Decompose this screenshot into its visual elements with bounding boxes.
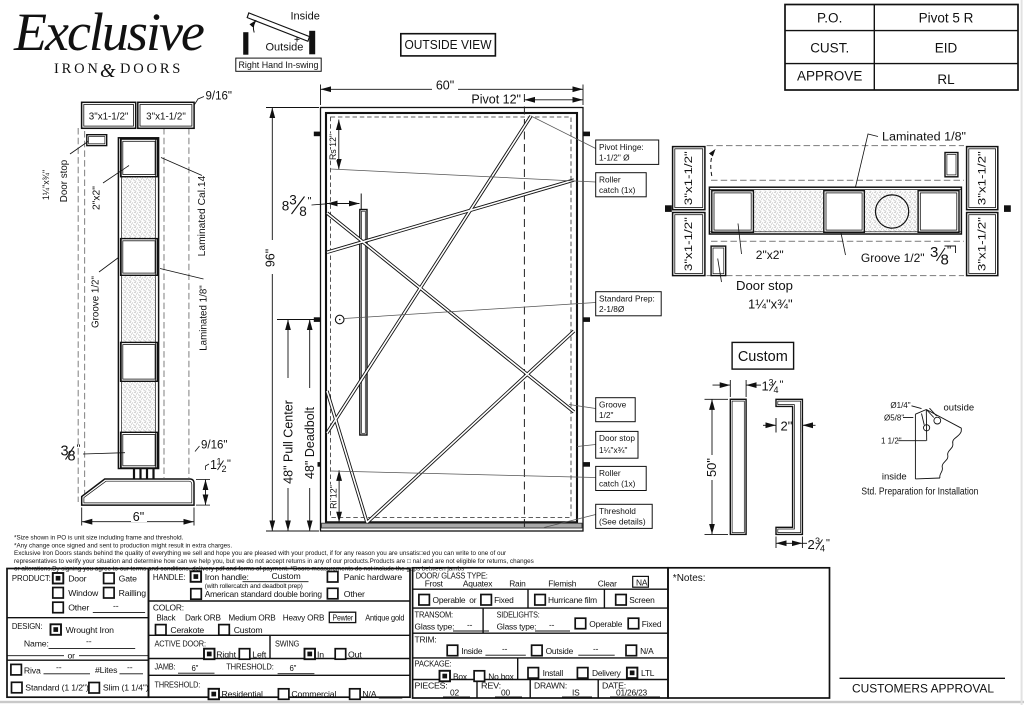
svg-text:--: -- [593,644,599,654]
svg-text:Laminated 1/8": Laminated 1/8" [882,132,966,144]
svg-text:Frost: Frost [425,578,444,588]
svg-text:Outside: Outside [266,42,304,54]
svg-text:LTL: LTL [641,668,655,678]
svg-text:Gate: Gate [119,574,138,584]
svg-text:Custom: Custom [272,571,301,581]
svg-text:Std. Preparation for Installat: Std. Preparation for Installation [861,487,978,498]
svg-text:COLOR:: COLOR: [153,603,184,613]
svg-text:": " [780,379,784,391]
svg-text:RL: RL [937,72,955,87]
svg-text:8: 8 [68,449,76,465]
svg-text:Door stop: Door stop [736,278,793,293]
svg-text:(See details): (See details) [599,517,646,527]
svg-text:TRIM:: TRIM: [415,634,437,644]
svg-text:Inside: Inside [291,11,320,23]
svg-text:P.O.: P.O. [817,11,842,26]
svg-text:N/A: N/A [640,646,654,656]
svg-text:": " [77,443,81,455]
svg-text:Standard (1 1/2"): Standard (1 1/2") [25,683,89,693]
svg-text:*Size shown in PO is unit size: *Size shown in PO is unit size including… [14,535,184,542]
svg-text:2"x2": 2"x2" [92,186,103,210]
svg-text:Slim (1 1/4"): Slim (1 1/4") [103,683,149,693]
svg-text:Door stop: Door stop [599,433,635,443]
svg-text:American standard double borin: American standard double boring [205,589,323,599]
svg-text:DESIGN:: DESIGN: [12,621,43,631]
svg-text:00: 00 [501,688,510,698]
svg-text:APPROVE: APPROVE [797,69,862,84]
svg-text:Name:: Name: [24,638,49,648]
svg-text:": " [308,196,312,208]
svg-text:CUSTOMERS APPROVAL: CUSTOMERS APPROVAL [852,683,994,696]
svg-text:9/16": 9/16" [206,91,232,103]
svg-text:4: 4 [774,385,779,395]
svg-text:Pivot Hinge:: Pivot Hinge: [599,142,644,152]
svg-text:CUST.: CUST. [810,41,849,56]
svg-text:48" Pull Center: 48" Pull Center [282,400,296,484]
svg-text:Iron handle:: Iron handle: [205,572,249,582]
svg-text:Other: Other [344,589,365,599]
svg-text:Dark ORB: Dark ORB [185,614,221,623]
svg-text:Custom: Custom [234,625,263,635]
svg-text:PACKAGE:: PACKAGE: [415,659,452,669]
svg-text:IS: IS [572,688,580,698]
svg-text:EID: EID [935,41,958,56]
svg-text:2: 2 [222,464,227,474]
svg-text:SIDELIGHTS:: SIDELIGHTS: [497,610,540,620]
svg-text:Right Hand In-swing: Right Hand In-swing [239,60,319,71]
svg-text:Pivot 12": Pivot 12" [471,93,521,107]
svg-text:or: or [68,650,76,660]
svg-text:01/26/23: 01/26/23 [616,688,648,698]
svg-text:Threshold: Threshold [599,506,636,516]
svg-text:Clear: Clear [598,578,617,588]
svg-text:Inside: Inside [461,646,483,656]
svg-text:PRODUCT:: PRODUCT: [12,573,51,583]
svg-text:REV:: REV: [481,681,501,691]
svg-text:#Lites: #Lites [95,665,118,675]
svg-text:Commercial: Commercial [291,689,336,699]
svg-text:Ri 12": Ri 12" [329,485,339,509]
svg-text:outside: outside [944,403,975,414]
svg-text:catch (1x): catch (1x) [599,479,636,489]
svg-text:3"x1-1/2": 3"x1-1/2" [977,151,989,205]
svg-text:JAMB:: JAMB: [155,661,176,671]
svg-text:Fixed: Fixed [494,595,514,605]
svg-text:--: -- [502,644,508,654]
svg-text:Outside: Outside [546,646,574,656]
svg-text:6": 6" [290,664,297,673]
svg-text:Residential: Residential [222,689,264,699]
svg-text:NA: NA [636,577,648,587]
svg-text:3"x1-1/2": 3"x1-1/2" [89,111,129,122]
svg-text:60": 60" [436,79,454,93]
svg-text:*Any change once signed and se: *Any change once signed and sent to prod… [14,542,232,549]
svg-text:Operable: Operable [589,619,622,629]
svg-text:": " [227,458,231,470]
svg-text:Rs 12": Rs 12" [328,134,338,160]
svg-text:Aquatex: Aquatex [463,578,493,588]
svg-text:--: -- [113,601,119,611]
svg-text:1-1/2" Ø: 1-1/2" Ø [599,152,630,162]
svg-text:Panic hardware: Panic hardware [344,572,403,582]
svg-text:OUTSIDE VIEW: OUTSIDE VIEW [405,37,493,52]
svg-text:Door stop: Door stop [59,159,70,202]
svg-text:1/2": 1/2" [599,410,614,420]
svg-text:Pewter: Pewter [333,614,354,623]
svg-text:--: -- [467,620,473,630]
svg-text:": " [826,538,830,550]
svg-text:or: or [469,595,476,605]
svg-text:1¼"x¾": 1¼"x¾" [599,445,628,455]
svg-text:Left: Left [252,650,267,660]
svg-text:Glass type:: Glass type: [415,621,455,631]
svg-text:Antique gold: Antique gold [365,614,405,623]
svg-text:Laminated Cal.14: Laminated Cal.14 [197,175,208,256]
svg-text:9/16": 9/16" [201,440,227,452]
svg-text:2: 2 [808,537,815,552]
svg-text:3"x1-1/2": 3"x1-1/2" [683,217,695,271]
svg-text:Ø5/8": Ø5/8" [884,414,904,423]
svg-text:ACTIVE DOOR:: ACTIVE DOOR: [155,639,206,649]
svg-text:Exclusive: Exclusive [13,2,204,62]
svg-text:Roller: Roller [599,468,621,478]
svg-text:Fixed: Fixed [642,619,662,629]
svg-text:3: 3 [930,244,938,261]
svg-text:2-1/8Ø: 2-1/8Ø [599,304,625,314]
svg-text:SWING: SWING [275,639,300,649]
svg-text:Pivot 5 R: Pivot 5 R [919,11,974,26]
svg-text:Flemish: Flemish [548,578,576,588]
svg-text:inside: inside [882,472,907,483]
svg-text:6": 6" [192,664,199,673]
svg-text:HANDLE:: HANDLE: [153,572,186,582]
svg-text:3: 3 [289,193,297,208]
svg-text:THRESHOLD:: THRESHOLD: [155,679,201,689]
svg-text:representatives to verify your: representatives to verify your situation… [14,558,534,565]
svg-text:8: 8 [299,204,307,219]
svg-text:DOORS: DOORS [120,61,183,77]
svg-text:Door: Door [68,574,86,584]
svg-text:THRESHOLD:: THRESHOLD: [226,661,274,671]
svg-text:IRON: IRON [54,61,101,77]
svg-text:--: -- [56,662,62,672]
svg-text:catch (1x): catch (1x) [599,185,636,195]
svg-text:2"x2": 2"x2" [756,248,784,262]
svg-text:50": 50" [704,458,719,477]
svg-text:Riva: Riva [24,666,41,676]
svg-text:Install: Install [543,668,564,678]
svg-text:96": 96" [264,249,278,267]
svg-text:Window: Window [68,588,99,598]
svg-text:In: In [317,650,324,660]
svg-text:3"x1-1/2": 3"x1-1/2" [146,111,186,122]
svg-text:--: -- [127,662,133,672]
svg-text:Laminated 1/8": Laminated 1/8" [199,285,210,351]
svg-text:6": 6" [133,510,144,524]
svg-text:Wrought Iron: Wrought Iron [66,625,115,635]
svg-text:Heavy ORB: Heavy ORB [283,614,325,623]
svg-text:Right: Right [216,650,236,660]
svg-text:Out: Out [348,650,362,660]
svg-text:N/A: N/A [362,689,376,699]
svg-text:2": 2" [781,419,793,434]
svg-text:Ø1/4": Ø1/4" [890,401,910,410]
svg-text:Roller: Roller [599,175,621,185]
svg-text:4: 4 [820,544,825,554]
svg-text:Railling: Railling [119,588,147,598]
svg-text:Other: Other [68,603,89,613]
svg-text:Groove 1/2": Groove 1/2" [861,251,925,265]
svg-text:Hurricane film: Hurricane film [548,595,597,605]
svg-text:Glass type:: Glass type: [497,621,537,631]
svg-text:Delivery: Delivery [592,668,622,678]
svg-text:1¼"x¾": 1¼"x¾" [41,170,51,200]
svg-text:8: 8 [282,199,290,214]
svg-text:Custom: Custom [738,349,788,365]
svg-text:--: -- [549,620,555,630]
svg-text:&: & [100,60,116,82]
svg-text:DRAWN:: DRAWN: [534,681,567,691]
svg-text:Black: Black [156,614,176,623]
svg-text:Groove 1/2": Groove 1/2" [91,276,102,328]
svg-text:Rain: Rain [509,578,526,588]
svg-text:*Notes:: *Notes: [673,573,706,584]
svg-text:Screen: Screen [629,595,655,605]
svg-text:Cerakote: Cerakote [170,625,204,635]
svg-text:1 1/2": 1 1/2" [881,437,902,446]
svg-text:PIECES:: PIECES: [415,681,448,691]
svg-text:Box: Box [453,671,468,681]
svg-text:48" Deadbolt: 48" Deadbolt [303,407,317,479]
svg-text:Standard Prep:: Standard Prep: [599,294,655,304]
svg-text:Groove: Groove [599,400,627,410]
svg-text:1¼"x¾": 1¼"x¾" [748,297,793,312]
svg-text:02: 02 [450,688,459,698]
svg-text:TRANSOM:: TRANSOM: [415,610,454,620]
svg-text:Operable: Operable [433,595,466,605]
svg-text:Medium ORB: Medium ORB [228,614,276,623]
svg-text:Exclusive Iron Doors stands be: Exclusive Iron Doors stands behind the q… [14,550,506,557]
svg-text:3"x1-1/2": 3"x1-1/2" [977,217,989,271]
svg-text:3"x1-1/2": 3"x1-1/2" [683,151,695,205]
svg-text:--: -- [86,636,92,646]
